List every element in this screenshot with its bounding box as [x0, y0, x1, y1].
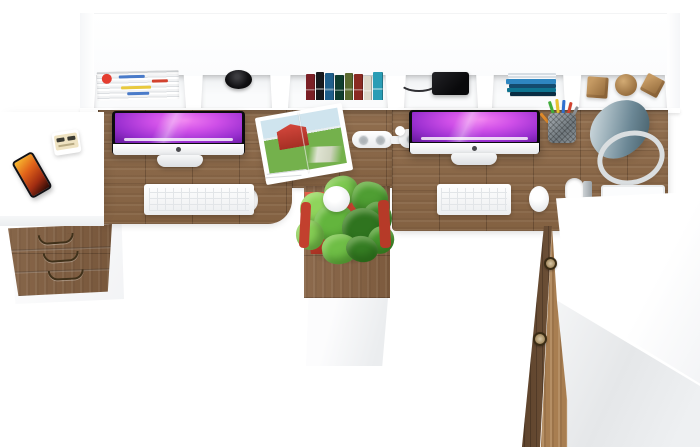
- book-row: [306, 70, 384, 100]
- magazine-title-mark: [152, 79, 168, 82]
- magazine-logo-mark: [102, 74, 112, 84]
- magazine-title-mark: [119, 75, 145, 79]
- apple-logo: [472, 146, 477, 151]
- imac-left-dock: [124, 138, 233, 141]
- side-table-edge: [0, 216, 104, 226]
- book-spine: [325, 73, 334, 100]
- wood-cube: [586, 76, 608, 98]
- apple-logo: [176, 147, 181, 152]
- flat-book: [510, 92, 556, 96]
- door-knob: [533, 332, 547, 346]
- magazine-title-mark: [127, 92, 149, 96]
- book-spine: [354, 74, 363, 100]
- book-spine: [335, 75, 344, 100]
- side-table: [0, 110, 104, 226]
- power-strip-pod: [352, 131, 393, 148]
- drawer-seam: [8, 246, 112, 252]
- cable-clip: [395, 126, 405, 136]
- book-spine: [316, 72, 324, 100]
- imac-left-stand: [157, 155, 203, 167]
- door-knob: [544, 257, 557, 270]
- black-cup: [225, 70, 252, 89]
- pen: [562, 100, 566, 114]
- hutch-right-side: [667, 13, 680, 108]
- hutch-left-side: [80, 13, 94, 108]
- socket-hole: [358, 135, 369, 146]
- book-spine: [373, 72, 383, 100]
- keyboard-keys: [441, 188, 507, 211]
- desk-workstation-photo: [0, 0, 700, 447]
- book-spine: [345, 73, 353, 100]
- flat-book-stack: [506, 73, 558, 96]
- magazine-title-mark: [121, 86, 151, 90]
- keyboard-right: [437, 184, 511, 215]
- socket-device: [51, 129, 81, 156]
- plant-pedestal-front: [306, 298, 388, 366]
- keyboard-keys: [149, 188, 249, 211]
- imac-right-stand: [451, 153, 497, 165]
- pen: [555, 99, 559, 113]
- mouse-left: [323, 186, 350, 212]
- wood-sphere: [615, 74, 637, 96]
- hutch-top-panel: [80, 13, 680, 76]
- mouse-right: [529, 186, 549, 212]
- socket-hole: [375, 135, 386, 146]
- pencil-cup: [548, 113, 576, 143]
- book-spine: [364, 76, 372, 100]
- path-image: [305, 146, 347, 163]
- black-laptop: [432, 72, 469, 95]
- imac-right-dock: [421, 137, 528, 140]
- keyboard-left: [144, 184, 254, 215]
- pencil-cup-group: [543, 100, 583, 145]
- magazine-stack: [97, 70, 180, 101]
- book-spine: [306, 74, 315, 100]
- drawer-unit: [0, 216, 128, 308]
